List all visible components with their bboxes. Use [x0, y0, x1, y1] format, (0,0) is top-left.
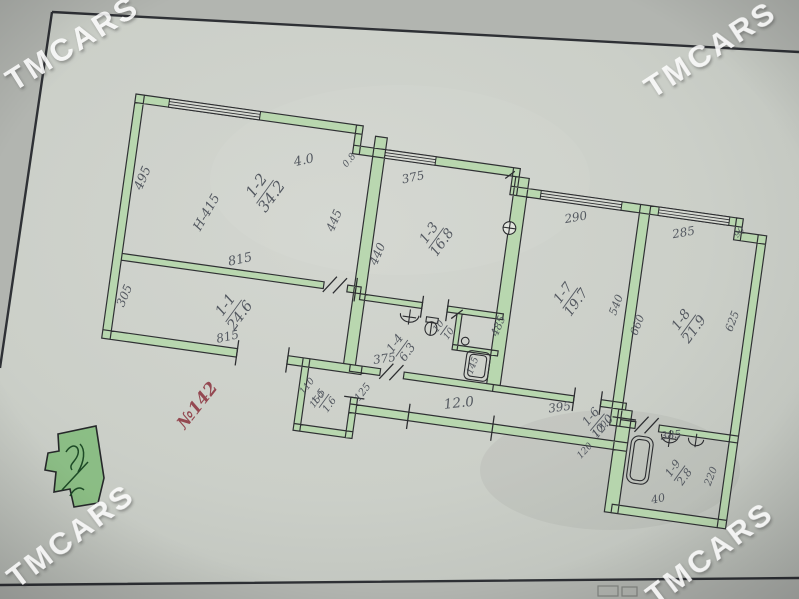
photo-of-floor-plan: 1-234.2 1-124.6 1-316.8 1-46.3 1-51.6 1-… [0, 0, 799, 599]
floor-plan-svg: 1-234.2 1-124.6 1-316.8 1-46.3 1-51.6 1-… [0, 0, 799, 599]
